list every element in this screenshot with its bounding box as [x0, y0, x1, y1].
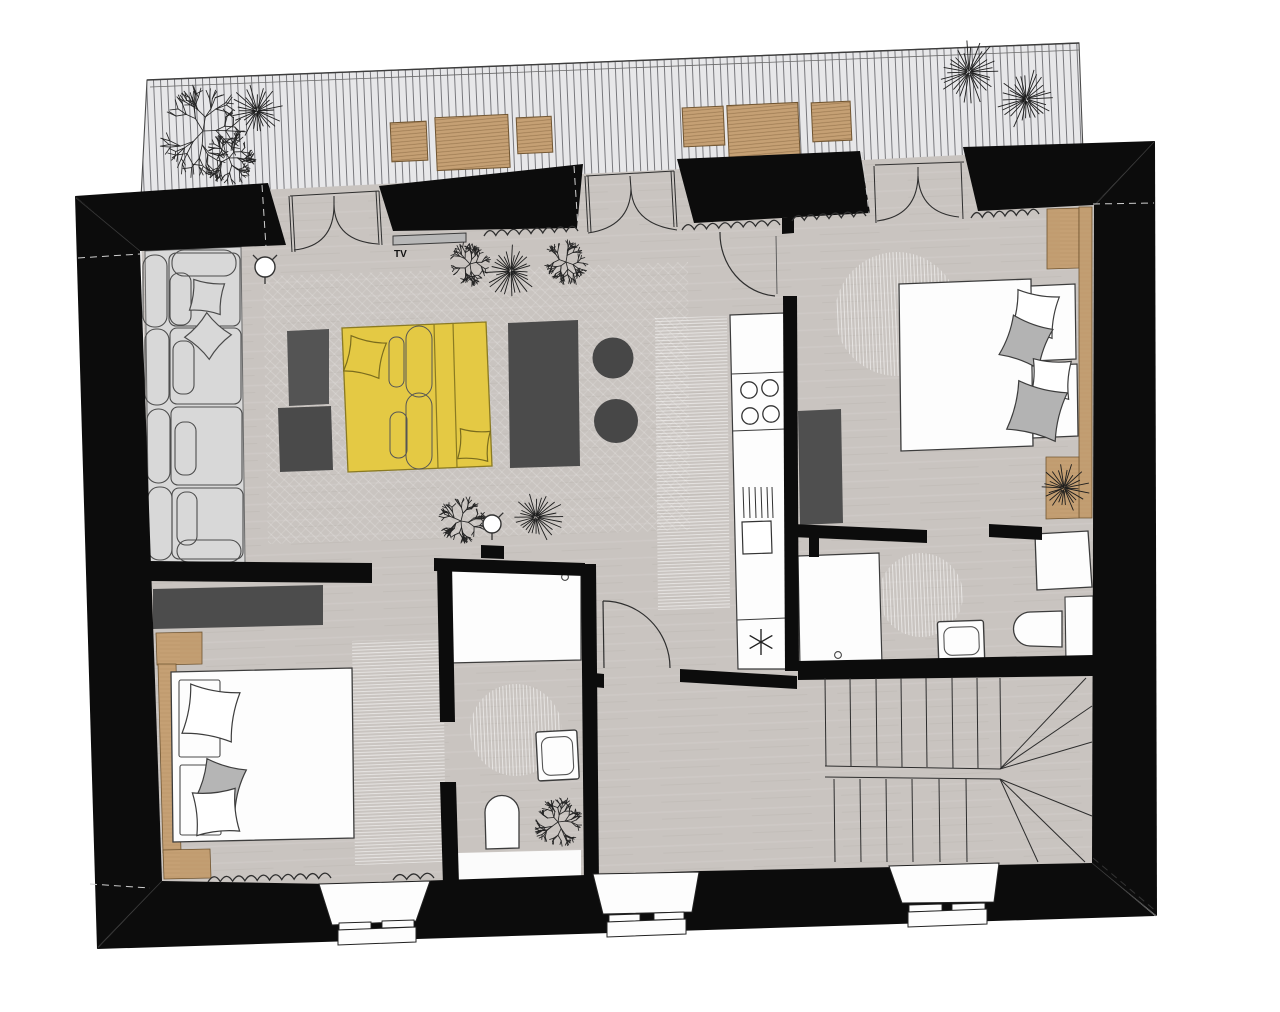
svg-text:TV: TV: [394, 249, 407, 260]
